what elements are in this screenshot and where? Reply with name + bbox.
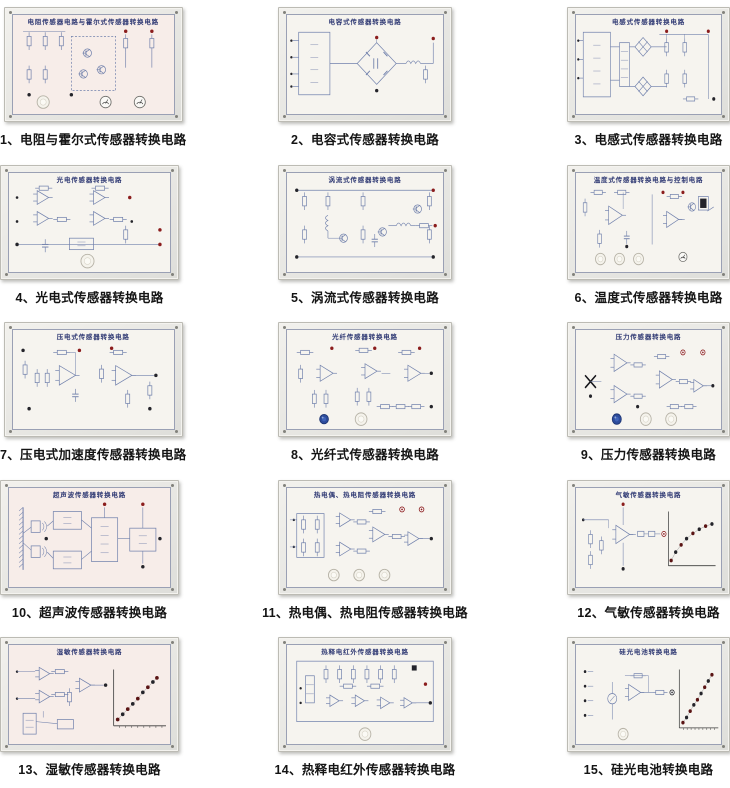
panel-face: 电容式传感器转换电路 bbox=[286, 14, 444, 115]
screw-icon bbox=[283, 169, 286, 172]
board-title: 光电传感器转换电路 bbox=[9, 173, 170, 184]
circuit-sketch-icon bbox=[287, 657, 443, 745]
product-grid: 电阻传感器电路与霍尔式传感器转换电路 1、电阻与霍尔式传感器转换电路 电容式传感… bbox=[0, 0, 730, 788]
screw-icon bbox=[444, 484, 447, 487]
board-title: 气敏传感器转换电路 bbox=[576, 488, 721, 499]
screw-icon bbox=[722, 588, 725, 591]
board-title: 压力传感器转换电路 bbox=[576, 330, 721, 341]
circuit-board-photo: 光电传感器转换电路 bbox=[0, 165, 179, 280]
screw-icon bbox=[722, 484, 725, 487]
panel-face: 压力传感器转换电路 bbox=[575, 329, 722, 430]
item-caption: 3、电感式传感器转换电路 bbox=[574, 129, 722, 148]
product-item: 电容式传感器转换电路 2、电容式传感器转换电路 bbox=[278, 0, 452, 158]
item-caption: 11、热电偶、热电阻传感器转换电路 bbox=[262, 602, 468, 621]
panel-face: 硅光电池转换电路 bbox=[575, 644, 722, 745]
circuit-sketch-icon bbox=[576, 499, 721, 587]
screw-icon bbox=[283, 11, 286, 14]
screw-icon bbox=[175, 326, 178, 329]
screw-icon bbox=[722, 115, 725, 118]
screw-icon bbox=[572, 484, 575, 487]
circuit-board-photo: 电容式传感器转换电路 bbox=[278, 7, 452, 122]
screw-icon bbox=[175, 115, 178, 118]
circuit-sketch-icon bbox=[576, 342, 721, 430]
panel-face: 光电传感器转换电路 bbox=[8, 172, 171, 273]
panel-face: 电阻传感器电路与霍尔式传感器转换电路 bbox=[12, 14, 175, 115]
circuit-board-photo: 压力传感器转换电路 bbox=[567, 322, 730, 437]
screw-icon bbox=[5, 484, 8, 487]
screw-icon bbox=[283, 745, 286, 748]
item-caption: 7、压电式加速度传感器转换电路 bbox=[0, 444, 186, 463]
board-title: 电阻传感器电路与霍尔式传感器转换电路 bbox=[13, 15, 174, 26]
item-caption: 10、超声波传感器转换电路 bbox=[12, 602, 167, 621]
circuit-sketch-icon bbox=[287, 342, 443, 430]
screw-icon bbox=[572, 115, 575, 118]
board-title: 光纤传感器转换电路 bbox=[287, 330, 443, 341]
circuit-board-photo: 温度式传感器转换电路与控制电路 bbox=[567, 165, 730, 280]
item-caption: 14、热释电红外传感器转换电路 bbox=[275, 759, 456, 778]
screw-icon bbox=[171, 641, 174, 644]
screw-icon bbox=[444, 745, 447, 748]
panel-face: 热释电红外传感器转换电路 bbox=[286, 644, 444, 745]
board-title: 硅光电池转换电路 bbox=[576, 645, 721, 656]
item-caption: 5、涡流式传感器转换电路 bbox=[291, 287, 439, 306]
screw-icon bbox=[283, 484, 286, 487]
circuit-sketch-icon bbox=[13, 342, 174, 430]
screw-icon bbox=[572, 430, 575, 433]
board-title: 温度式传感器转换电路与控制电路 bbox=[576, 173, 721, 184]
screw-icon bbox=[444, 115, 447, 118]
screw-icon bbox=[9, 326, 12, 329]
item-caption: 9、压力传感器转换电路 bbox=[581, 444, 716, 463]
circuit-board-photo: 超声波传感器转换电路 bbox=[0, 480, 179, 595]
circuit-board-photo: 涡流式传感器转换电路 bbox=[278, 165, 452, 280]
panel-face: 温度式传感器转换电路与控制电路 bbox=[575, 172, 722, 273]
screw-icon bbox=[283, 115, 286, 118]
panel-face: 电感式传感器转换电路 bbox=[575, 14, 722, 115]
panel-face: 热电偶、热电阻传感器转换电路 bbox=[286, 487, 444, 588]
circuit-board-photo: 热释电红外传感器转换电路 bbox=[278, 637, 452, 752]
circuit-board-photo: 湿敏传感器转换电路 bbox=[0, 637, 179, 752]
screw-icon bbox=[444, 11, 447, 14]
product-item: 电感式传感器转换电路 3、电感式传感器转换电路 bbox=[567, 0, 730, 158]
screw-icon bbox=[175, 11, 178, 14]
screw-icon bbox=[283, 588, 286, 591]
circuit-sketch-icon bbox=[13, 26, 174, 114]
board-title: 电感式传感器转换电路 bbox=[576, 15, 721, 26]
screw-icon bbox=[5, 169, 8, 172]
product-item: 压电式传感器转换电路 7、压电式加速度传感器转换电路 bbox=[0, 315, 186, 473]
panel-face: 压电式传感器转换电路 bbox=[12, 329, 175, 430]
screw-icon bbox=[572, 169, 575, 172]
screw-icon bbox=[444, 169, 447, 172]
panel-face: 光纤传感器转换电路 bbox=[286, 329, 444, 430]
screw-icon bbox=[722, 11, 725, 14]
item-caption: 2、电容式传感器转换电路 bbox=[291, 129, 439, 148]
circuit-sketch-icon bbox=[576, 26, 721, 114]
screw-icon bbox=[572, 745, 575, 748]
screw-icon bbox=[722, 430, 725, 433]
panel-face: 气敏传感器转换电路 bbox=[575, 487, 722, 588]
product-item: 热释电红外传感器转换电路 14、热释电红外传感器转换电路 bbox=[275, 630, 456, 788]
screw-icon bbox=[444, 273, 447, 276]
screw-icon bbox=[722, 326, 725, 329]
circuit-board-photo: 电阻传感器电路与霍尔式传感器转换电路 bbox=[4, 7, 183, 122]
item-caption: 15、硅光电池转换电路 bbox=[584, 759, 714, 778]
panel-face: 涡流式传感器转换电路 bbox=[286, 172, 444, 273]
item-caption: 6、温度式传感器转换电路 bbox=[574, 287, 722, 306]
screw-icon bbox=[444, 641, 447, 644]
product-item: 温度式传感器转换电路与控制电路 6、温度式传感器转换电路 bbox=[567, 158, 730, 316]
screw-icon bbox=[5, 273, 8, 276]
panel-face: 湿敏传感器转换电路 bbox=[8, 644, 171, 745]
board-title: 热释电红外传感器转换电路 bbox=[287, 645, 443, 656]
circuit-sketch-icon bbox=[9, 184, 170, 272]
circuit-sketch-icon bbox=[576, 184, 721, 272]
item-caption: 12、气敏传感器转换电路 bbox=[577, 602, 720, 621]
circuit-board-photo: 热电偶、热电阻传感器转换电路 bbox=[278, 480, 452, 595]
screw-icon bbox=[722, 745, 725, 748]
panel-face: 超声波传感器转换电路 bbox=[8, 487, 171, 588]
circuit-sketch-icon bbox=[287, 26, 443, 114]
product-item: 光电传感器转换电路 4、光电式传感器转换电路 bbox=[0, 158, 179, 316]
screw-icon bbox=[444, 326, 447, 329]
screw-icon bbox=[444, 430, 447, 433]
board-title: 湿敏传感器转换电路 bbox=[9, 645, 170, 656]
circuit-board-photo: 压电式传感器转换电路 bbox=[4, 322, 183, 437]
product-item: 湿敏传感器转换电路 13、湿敏传感器转换电路 bbox=[0, 630, 179, 788]
board-title: 压电式传感器转换电路 bbox=[13, 330, 174, 341]
product-item: 硅光电池转换电路 15、硅光电池转换电路 bbox=[567, 630, 730, 788]
circuit-board-photo: 电感式传感器转换电路 bbox=[567, 7, 730, 122]
screw-icon bbox=[283, 273, 286, 276]
screw-icon bbox=[175, 430, 178, 433]
screw-icon bbox=[171, 745, 174, 748]
circuit-sketch-icon bbox=[287, 499, 443, 587]
screw-icon bbox=[9, 11, 12, 14]
circuit-board-photo: 气敏传感器转换电路 bbox=[567, 480, 730, 595]
product-item: 涡流式传感器转换电路 5、涡流式传感器转换电路 bbox=[278, 158, 452, 316]
screw-icon bbox=[283, 430, 286, 433]
screw-icon bbox=[722, 169, 725, 172]
item-caption: 4、光电式传感器转换电路 bbox=[15, 287, 163, 306]
product-item: 热电偶、热电阻传感器转换电路 11、热电偶、热电阻传感器转换电路 bbox=[262, 473, 468, 631]
board-title: 超声波传感器转换电路 bbox=[9, 488, 170, 499]
product-item: 超声波传感器转换电路 10、超声波传感器转换电路 bbox=[0, 473, 179, 631]
screw-icon bbox=[5, 745, 8, 748]
screw-icon bbox=[171, 588, 174, 591]
screw-icon bbox=[572, 588, 575, 591]
product-item: 电阻传感器电路与霍尔式传感器转换电路 1、电阻与霍尔式传感器转换电路 bbox=[0, 0, 186, 158]
screw-icon bbox=[722, 641, 725, 644]
board-title: 热电偶、热电阻传感器转换电路 bbox=[287, 488, 443, 499]
circuit-board-photo: 光纤传感器转换电路 bbox=[278, 322, 452, 437]
board-title: 电容式传感器转换电路 bbox=[287, 15, 443, 26]
product-item: 气敏传感器转换电路 12、气敏传感器转换电路 bbox=[567, 473, 730, 631]
screw-icon bbox=[5, 588, 8, 591]
screw-icon bbox=[722, 273, 725, 276]
screw-icon bbox=[171, 484, 174, 487]
screw-icon bbox=[9, 115, 12, 118]
circuit-sketch-icon bbox=[9, 657, 170, 745]
circuit-sketch-icon bbox=[576, 657, 721, 745]
circuit-sketch-icon bbox=[287, 184, 443, 272]
screw-icon bbox=[171, 169, 174, 172]
screw-icon bbox=[9, 430, 12, 433]
product-item: 光纤传感器转换电路 8、光纤式传感器转换电路 bbox=[278, 315, 452, 473]
item-caption: 13、湿敏传感器转换电路 bbox=[18, 759, 161, 778]
circuit-board-photo: 硅光电池转换电路 bbox=[567, 637, 730, 752]
screw-icon bbox=[444, 588, 447, 591]
product-item: 压力传感器转换电路 9、压力传感器转换电路 bbox=[567, 315, 730, 473]
item-caption: 8、光纤式传感器转换电路 bbox=[291, 444, 439, 463]
board-title: 涡流式传感器转换电路 bbox=[287, 173, 443, 184]
circuit-sketch-icon bbox=[9, 499, 170, 587]
screw-icon bbox=[171, 273, 174, 276]
item-caption: 1、电阻与霍尔式传感器转换电路 bbox=[0, 129, 186, 148]
screw-icon bbox=[572, 273, 575, 276]
screw-icon bbox=[572, 11, 575, 14]
